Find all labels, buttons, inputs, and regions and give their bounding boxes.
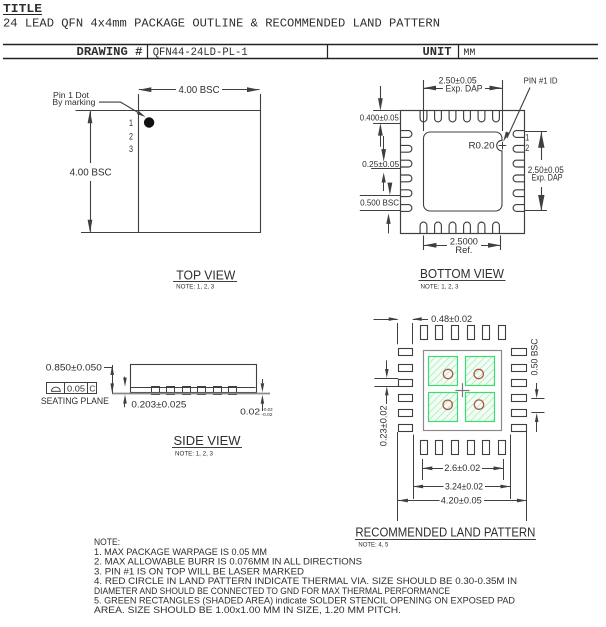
svg-text:0.50 BSC: 0.50 BSC [530,338,540,375]
svg-text:3.24±0.02: 3.24±0.02 [445,481,483,491]
svg-text:NOTE: 1, 2, 3: NOTE: 1, 2, 3 [176,284,215,291]
svg-text:0.25±0.05: 0.25±0.05 [362,160,400,169]
svg-text:0.02: 0.02 [240,407,260,417]
svg-text:UNIT: UNIT [423,45,452,59]
svg-text:SEATING PLANE: SEATING PLANE [41,396,109,406]
svg-text:1. MAX PACKAGE WARPAGE IS 0.05: 1. MAX PACKAGE WARPAGE IS 0.05 MM [94,547,267,557]
svg-text:C: C [89,384,95,394]
svg-text:2. MAX ALLOWABLE BURR IS 0.076: 2. MAX ALLOWABLE BURR IS 0.076MM IN ALL … [94,557,362,567]
svg-text:-0.02: -0.02 [262,412,273,417]
svg-text:1: 1 [129,118,133,128]
svg-text:R0.20: R0.20 [469,141,495,152]
svg-text:24 LEAD QFN 4x4mm PACKAGE OUTL: 24 LEAD QFN 4x4mm PACKAGE OUTLINE & RECO… [3,17,440,31]
svg-text:DRAWING #: DRAWING # [77,45,143,59]
svg-text:NOTE: 1, 2, 3: NOTE: 1, 2, 3 [421,283,460,290]
svg-text:MM: MM [463,47,475,59]
svg-text:TITLE: TITLE [3,2,42,16]
svg-text:2.6±0.02: 2.6±0.02 [444,463,480,473]
svg-text:TOP VIEW: TOP VIEW [176,268,235,282]
svg-text:Ref.: Ref. [455,245,472,255]
svg-text:0.05: 0.05 [67,384,85,394]
svg-text:SIDE VIEW: SIDE VIEW [174,434,241,448]
svg-text:NOTE: 4, 5: NOTE: 4, 5 [358,541,389,548]
svg-text:By marking: By marking [52,98,95,107]
svg-text:4.00 BSC: 4.00 BSC [70,167,112,178]
svg-text:0.48±0.02: 0.48±0.02 [431,314,472,324]
svg-text:AREA. SIZE SHOULD BE 1.00x1.: AREA. SIZE SHOULD BE 1.00x1.00 MM IN SIZ… [94,605,401,615]
svg-text:Exp. DAP: Exp. DAP [532,173,563,183]
svg-text:NOTE:: NOTE: [94,537,120,547]
svg-text:NOTE: 1, 2, 3: NOTE: 1, 2, 3 [175,451,214,458]
svg-text:Exp. DAP: Exp. DAP [446,83,483,93]
svg-text:0.850±0.050: 0.850±0.050 [46,363,102,373]
svg-text:0.23±0.02: 0.23±0.02 [378,405,388,446]
svg-text:4.20±0.05: 4.20±0.05 [441,495,482,505]
svg-text:4.00 BSC: 4.00 BSC [179,85,220,96]
svg-text:2: 2 [525,143,529,154]
svg-text:1: 1 [525,132,529,143]
svg-text:0.500 BSC: 0.500 BSC [360,198,399,207]
svg-text:BOTTOM VIEW: BOTTOM VIEW [420,267,504,281]
svg-text:4. RED CIRCLE IN LAND PATTERN: 4. RED CIRCLE IN LAND PATTERN INDICATE T… [94,576,517,586]
svg-text:5. GREEN RECTANGLES (SHADED AR: 5. GREEN RECTANGLES (SHADED AREA) indica… [94,596,515,606]
svg-text:3. PIN #1 IS ON TOP WILL BE LA: 3. PIN #1 IS ON TOP WILL BE LASER MARKED [94,566,304,576]
svg-text:QFN44-24LD-PL-1: QFN44-24LD-PL-1 [153,47,248,59]
svg-text:DIAMETER AND SHOULD BE CONNECT: DIAMETER AND SHOULD BE CONNECTED TO GND … [94,586,450,596]
svg-text:RECOMMENDED LAND PATTERN: RECOMMENDED LAND PATTERN [355,525,535,539]
svg-text:PIN #1 ID: PIN #1 ID [524,75,558,85]
svg-text:3: 3 [129,144,133,154]
svg-text:0.203±0.025: 0.203±0.025 [131,399,186,409]
svg-text:2: 2 [129,131,133,141]
svg-text:0.400±0.05: 0.400±0.05 [360,113,400,122]
